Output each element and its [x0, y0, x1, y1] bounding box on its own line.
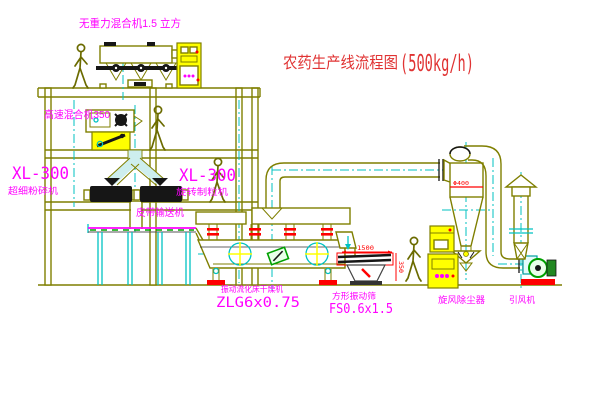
label-dryer: 振动流化床干燥机 [221, 284, 283, 294]
indicator-light [452, 275, 455, 278]
indicator-light [197, 79, 200, 82]
label-fan: 引风机 [509, 294, 535, 305]
label-square-screen: 方形振动筛 [332, 291, 377, 301]
pulverizer-unit [84, 186, 138, 202]
indicator-light [196, 51, 199, 54]
label-xl300-left: XL-300 [12, 164, 69, 184]
label-belt-conveyor: 皮带输送机 [136, 206, 184, 219]
induced-draft-fan [521, 256, 556, 285]
person-figure [406, 237, 421, 281]
label-cyclone: 旋风除尘器 [438, 294, 485, 305]
control-cabinet-2 [428, 226, 458, 288]
indicator-light [449, 229, 452, 232]
label-high-speed-mixer: 高速混合机350 [44, 108, 110, 121]
screen-height-dim: 350 [397, 261, 404, 273]
control-cabinet-1 [177, 43, 201, 88]
cyclone-diameter-dim: Φ400 [453, 181, 469, 187]
person-figure [73, 44, 88, 88]
label-gravity-mixer: 无重力混合机1.5 立方 [79, 16, 181, 30]
dryer-duct-stubs [207, 224, 333, 240]
process-flow-diagram: Φ400 [0, 0, 600, 403]
label-pulverizer: 超细粉碎机 [8, 185, 58, 196]
fan-motor [547, 260, 556, 276]
exhaust-stack [506, 175, 536, 259]
label-dryer-model: ZLG6x0.75 [216, 295, 300, 311]
diagram-canvas: Φ400 [0, 0, 600, 403]
page-title-capacity: (500kg/h) [400, 51, 474, 77]
screen-length-dim: 1500 [357, 244, 374, 252]
vibrating-screen: 1500 350 [336, 232, 404, 285]
exhaust-duct [266, 159, 462, 208]
fluid-bed-dryer [196, 208, 355, 285]
gravity-mixer [96, 42, 182, 88]
page-title: 农药生产线流程图 [283, 54, 398, 72]
label-screen-model: FS0.6x1.5 [329, 301, 393, 317]
cyclone-separator: Φ400 [450, 147, 483, 271]
label-xl300-right: XL-300 [179, 166, 236, 186]
label-granulator: 旋转制粒机 [176, 186, 228, 197]
y-feed-pipe [104, 150, 168, 186]
